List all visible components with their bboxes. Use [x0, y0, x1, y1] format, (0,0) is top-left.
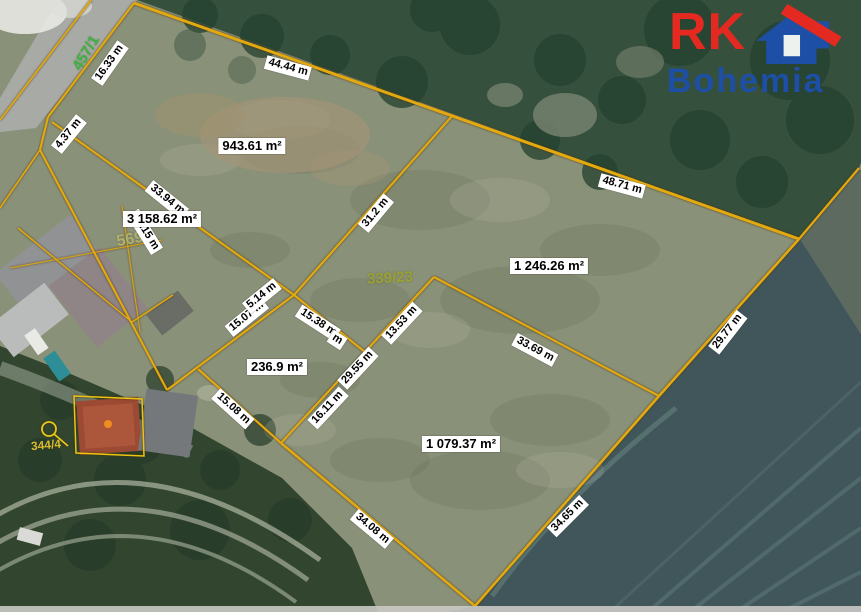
parcel-number: 339/23	[367, 268, 414, 287]
house-icon	[743, 2, 859, 66]
logo-bohemia-text: Bohemia	[667, 62, 825, 100]
area-label: 1 246.26 m²	[510, 258, 588, 274]
area-label: 3 158.62 m²	[123, 211, 201, 227]
area-label: 1 079.37 m²	[422, 436, 500, 452]
rk-bohemia-logo: RK Bohemia	[663, 2, 859, 120]
area-label: 943.61 m²	[218, 138, 285, 154]
logo-rk-text: RK	[669, 4, 746, 60]
cadastral-map: 457/1 569 339/23 344/4 16.33 m 4.37 m 44…	[0, 0, 861, 612]
parcel-number: 344/4	[30, 437, 61, 454]
area-label: 236.9 m²	[247, 359, 307, 375]
